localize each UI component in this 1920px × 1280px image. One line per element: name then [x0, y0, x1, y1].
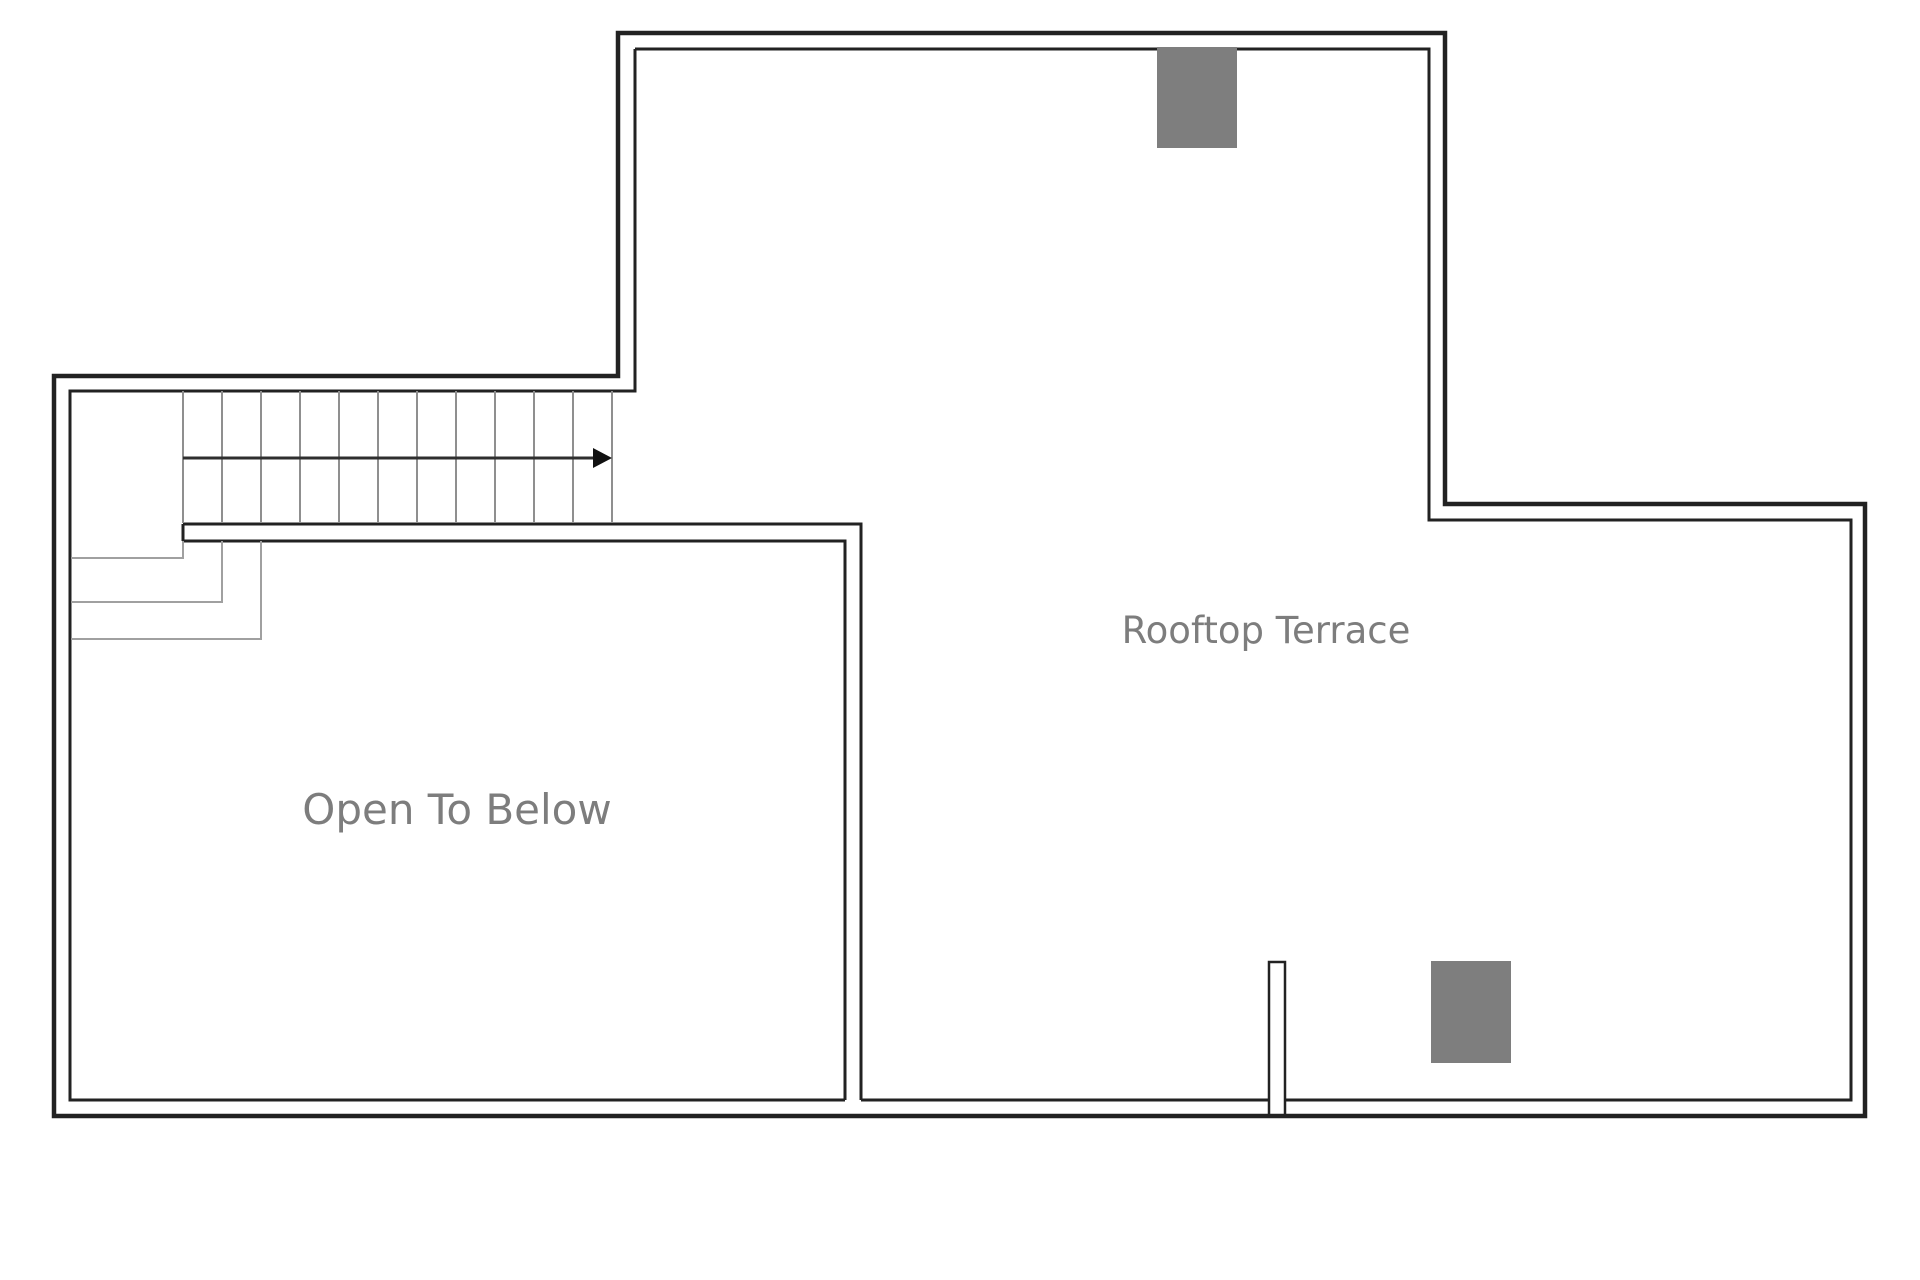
stair-winder-step: [71, 541, 222, 602]
room-label-open-to-below: Open To Below: [302, 785, 611, 834]
exterior-wall-outer-line: [54, 33, 1865, 1116]
roof-fixture: [1431, 961, 1511, 1063]
stair-arrow-head-icon: [593, 448, 612, 468]
floor-plan-page: Rooftop Terrace Open To Below: [0, 0, 1920, 1280]
roof-fixture: [1157, 47, 1237, 148]
stair-winders: [71, 541, 261, 639]
room-label-rooftop-terrace: Rooftop Terrace: [1122, 609, 1411, 652]
floor-plan-drawing: Rooftop Terrace Open To Below: [0, 0, 1920, 1280]
terrace-wall-stub: [1269, 962, 1285, 1116]
stair-winder-step: [71, 541, 183, 558]
exterior-wall-inner-line: [70, 49, 1851, 1100]
stair-winder-step: [71, 541, 261, 639]
stair-direction-arrow: [183, 448, 612, 468]
